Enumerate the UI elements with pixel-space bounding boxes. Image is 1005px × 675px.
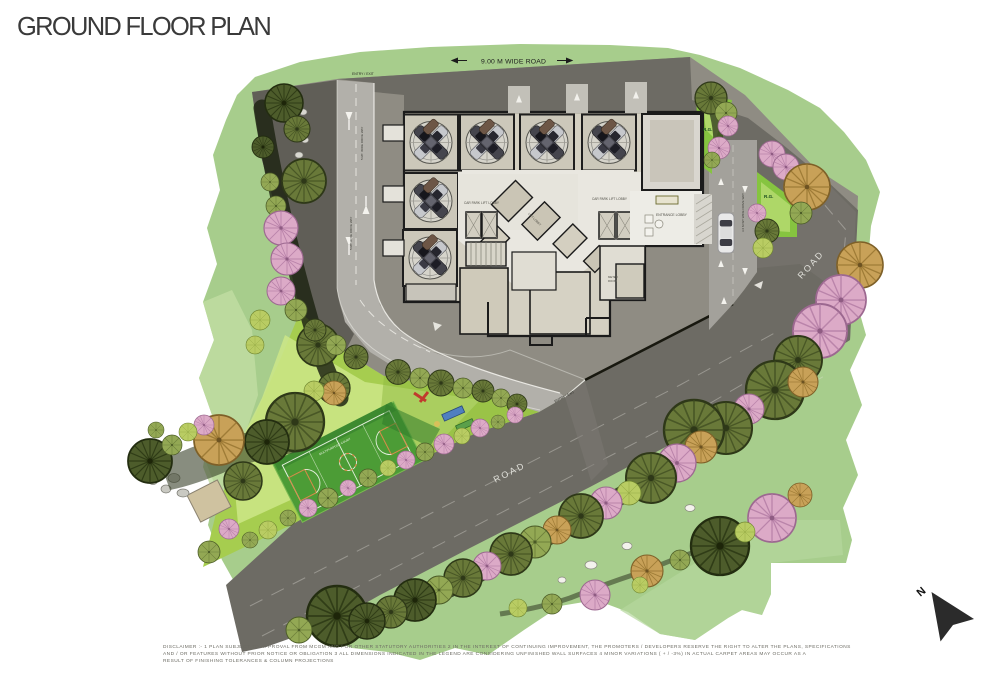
svg-text:GROUND FLOOR PLAN: GROUND FLOOR PLAN <box>17 13 270 41</box>
svg-text:ROOM: ROOM <box>608 279 617 283</box>
svg-text:5 MT. WIDE DRIVE WAY: 5 MT. WIDE DRIVE WAY <box>360 127 364 160</box>
svg-text:ENTRY / EXIT: ENTRY / EXIT <box>352 72 374 76</box>
svg-text:9.00 M WIDE ROAD: 9.00 M WIDE ROAD <box>481 59 546 66</box>
svg-text:AND / OR FEATURES WITHOUT PRIO: AND / OR FEATURES WITHOUT PRIOR NOTICE O… <box>163 651 807 657</box>
svg-text:5 MT. WIDE DRIVE WAY: 5 MT. WIDE DRIVE WAY <box>349 217 353 250</box>
svg-text:ENTRANCE LOBBY: ENTRANCE LOBBY <box>656 213 688 217</box>
svg-text:CAR PARK LIFT LOBBY: CAR PARK LIFT LOBBY <box>592 197 628 201</box>
svg-text:R.G.: R.G. <box>764 194 773 199</box>
svg-text:CAR PARK LIFT LOBBY: CAR PARK LIFT LOBBY <box>464 201 500 205</box>
svg-text:RESULT OF FINISHING TOLERANCE: RESULT OF FINISHING TOLERANCES & COLUMN … <box>163 658 334 664</box>
svg-text:DISCLAIMER :- 1 PLAN SUBJECT: DISCLAIMER :- 1 PLAN SUBJECT TO APPROVAL… <box>163 644 851 650</box>
svg-text:3.6 M WT WIDE DRIVE WAY: 3.6 M WT WIDE DRIVE WAY <box>741 193 745 232</box>
svg-text:R.G.: R.G. <box>703 127 712 132</box>
